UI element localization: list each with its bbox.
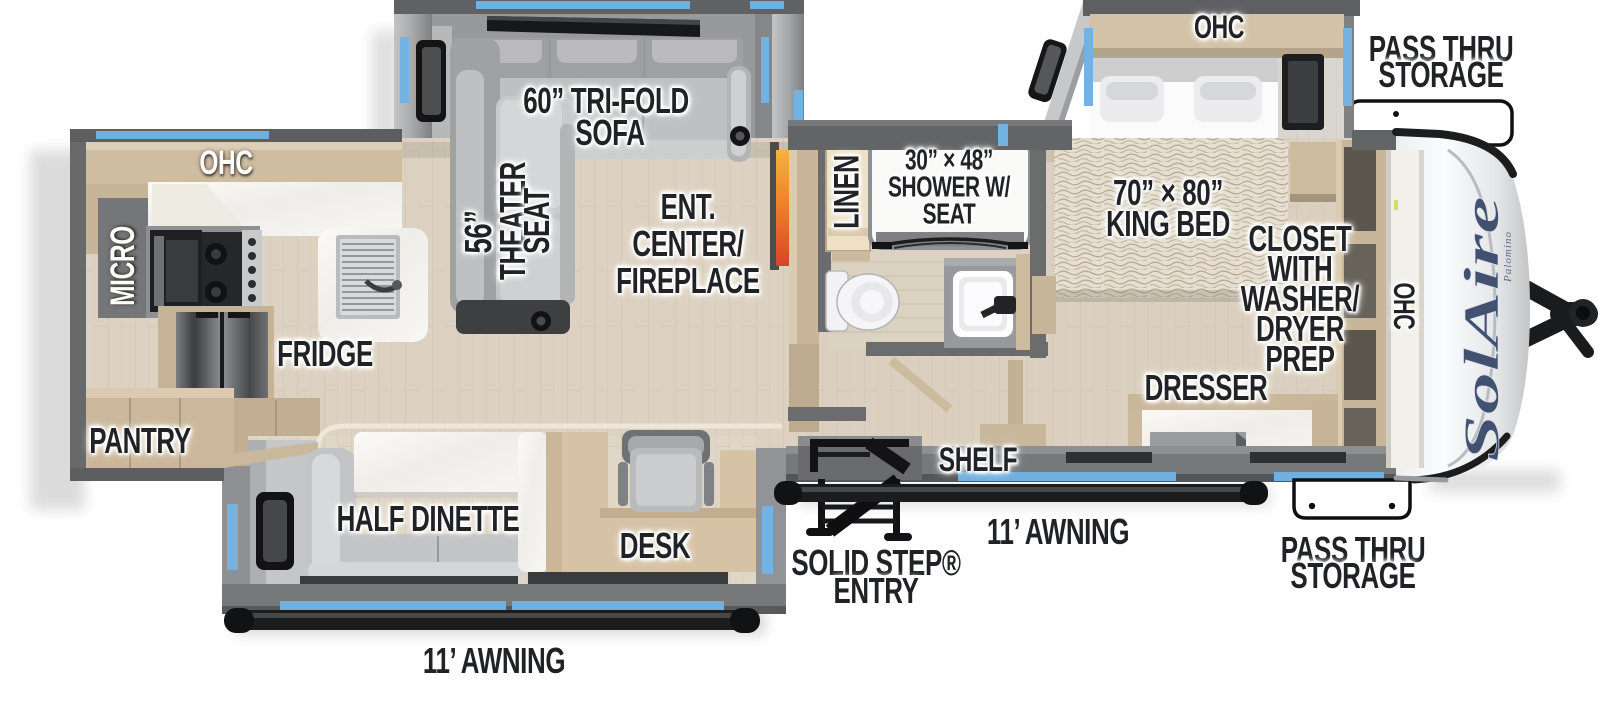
svg-text:SolAire: SolAire [1453, 196, 1509, 462]
svg-text:Palomino: Palomino [1502, 232, 1514, 284]
